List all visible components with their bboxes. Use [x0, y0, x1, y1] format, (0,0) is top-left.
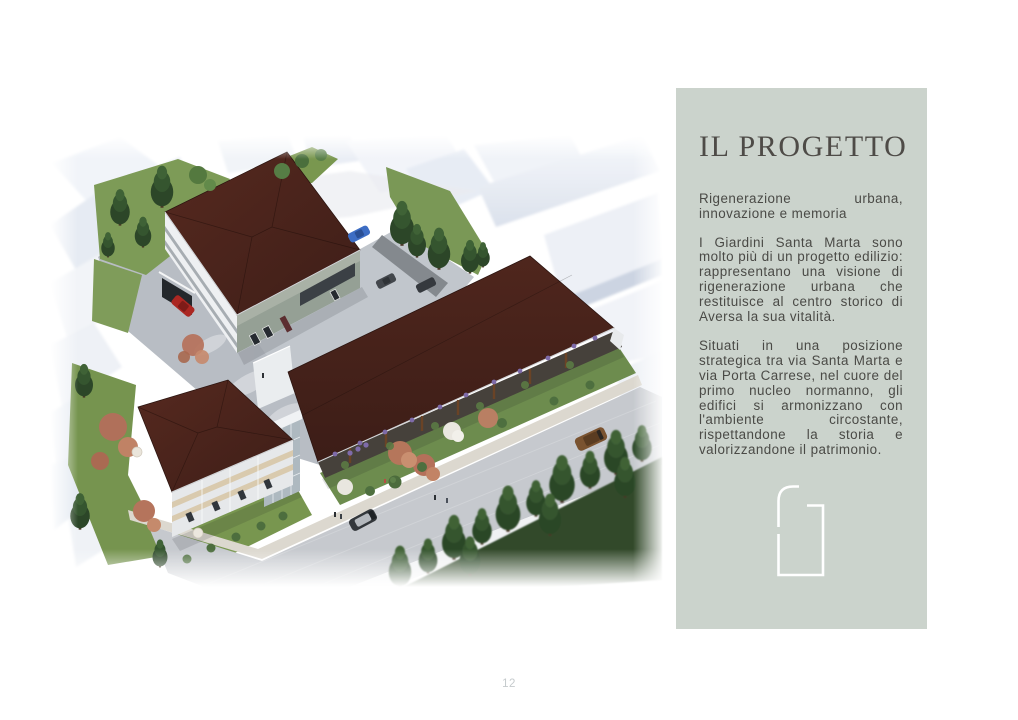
page-number: 12	[0, 678, 1018, 690]
panel-paragraph-1: I Giardini Santa Marta sono molto più di…	[699, 236, 903, 325]
panel-title: IL PROGETTO	[699, 130, 903, 164]
project-panel: IL PROGETTO Rigenerazione urbana, innova…	[676, 88, 927, 629]
blue-car	[347, 225, 371, 244]
parasol	[193, 528, 203, 538]
parasol	[132, 447, 142, 457]
aerial-render	[50, 135, 665, 587]
arch-logo-icon	[776, 484, 826, 578]
panel-subtitle: Rigenerazione urbana, innovazione e memo…	[699, 192, 903, 222]
panel-paragraph-2: Situati in una posizione strategica tra …	[699, 339, 903, 457]
